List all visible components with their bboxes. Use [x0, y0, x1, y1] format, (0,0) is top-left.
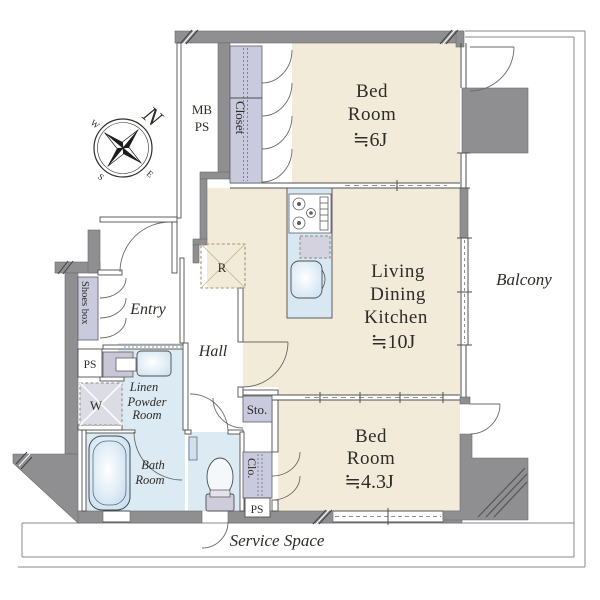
- bath-label-2: Room: [134, 473, 164, 487]
- clo-label: Clo.: [245, 458, 259, 478]
- floor-plan-drawing: N W S E Bed Room ≒6J Living Dining Kitch…: [0, 0, 600, 600]
- bedroom1-size: ≒6J: [353, 129, 388, 151]
- bedroom1-label-1: Bed: [356, 81, 388, 102]
- toilet-door-arc: [190, 394, 228, 432]
- sto-label: Sto.: [247, 402, 268, 417]
- compass-s: S: [96, 172, 106, 183]
- mb-ps-label-2: PS: [195, 119, 209, 134]
- mb-ps-label-1: MB: [192, 102, 213, 117]
- compass-icon: N W S E: [89, 101, 168, 182]
- linen-label: Linen: [129, 380, 158, 394]
- service-door-arc: [202, 522, 228, 548]
- bedroom2-balcony-door-arc: [470, 404, 500, 434]
- ldk-label-1: Living: [371, 261, 425, 282]
- bedroom2-label-1: Bed: [355, 426, 387, 447]
- hall-label: Hall: [198, 343, 228, 360]
- powder-label-2: Room: [131, 408, 161, 422]
- bedroom2-label-2: Room: [347, 448, 395, 469]
- bedroom1-balcony-door-arc: [470, 47, 514, 91]
- ps-bottom-label: PS: [251, 504, 264, 516]
- pillar-top-right: [462, 88, 528, 153]
- ps-top-label: PS: [84, 359, 97, 371]
- floor-plan-page: N W S E Bed Room ≒6J Living Dining Kitch…: [0, 0, 600, 600]
- compass-e: E: [145, 168, 156, 180]
- kitchen-counter-icon: [287, 188, 332, 318]
- refrigerator-space: [300, 236, 330, 258]
- ldk-label-3: Kitchen: [364, 307, 428, 328]
- compass-n: N: [137, 101, 168, 133]
- bedroom1-label-2: Room: [348, 104, 396, 125]
- entrance-door-arc: [120, 222, 170, 272]
- ldk-size: ≒10J: [371, 331, 416, 353]
- storage-door-arc: [213, 398, 243, 428]
- ldk-label-2: Dining: [370, 284, 426, 305]
- kitchen-sink-icon: [291, 261, 322, 298]
- closet-label: Closet: [233, 101, 248, 135]
- washbasin-icon: [137, 351, 171, 376]
- service-space-label: Service Space: [230, 531, 325, 550]
- bath-label-1: Bath: [141, 458, 165, 472]
- washer-label: W: [90, 398, 103, 413]
- balcony-label: Balcony: [496, 270, 552, 289]
- refrigerator-label: R: [218, 260, 227, 275]
- compass-w: W: [89, 117, 102, 130]
- bathtub-icon: [89, 436, 130, 510]
- entry-label: Entry: [129, 301, 166, 318]
- bedroom2-size: ≒4.3J: [344, 471, 394, 493]
- powder-label-1: Powder: [127, 395, 167, 409]
- shoes-box-label: Shoes box: [79, 281, 90, 325]
